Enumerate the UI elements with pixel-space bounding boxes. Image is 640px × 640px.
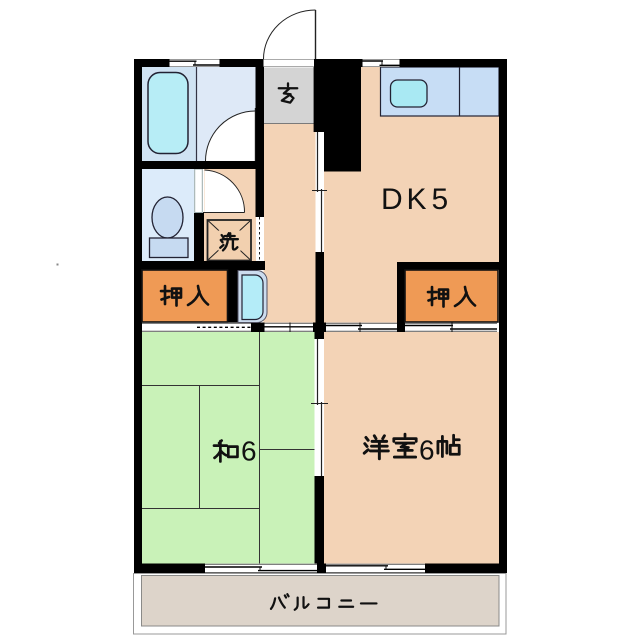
svg-text:6: 6 xyxy=(419,435,435,466)
svg-text:5: 5 xyxy=(432,183,449,216)
svg-text:6: 6 xyxy=(241,436,257,467)
svg-text:K: K xyxy=(407,183,427,216)
svg-text:D: D xyxy=(381,183,403,216)
